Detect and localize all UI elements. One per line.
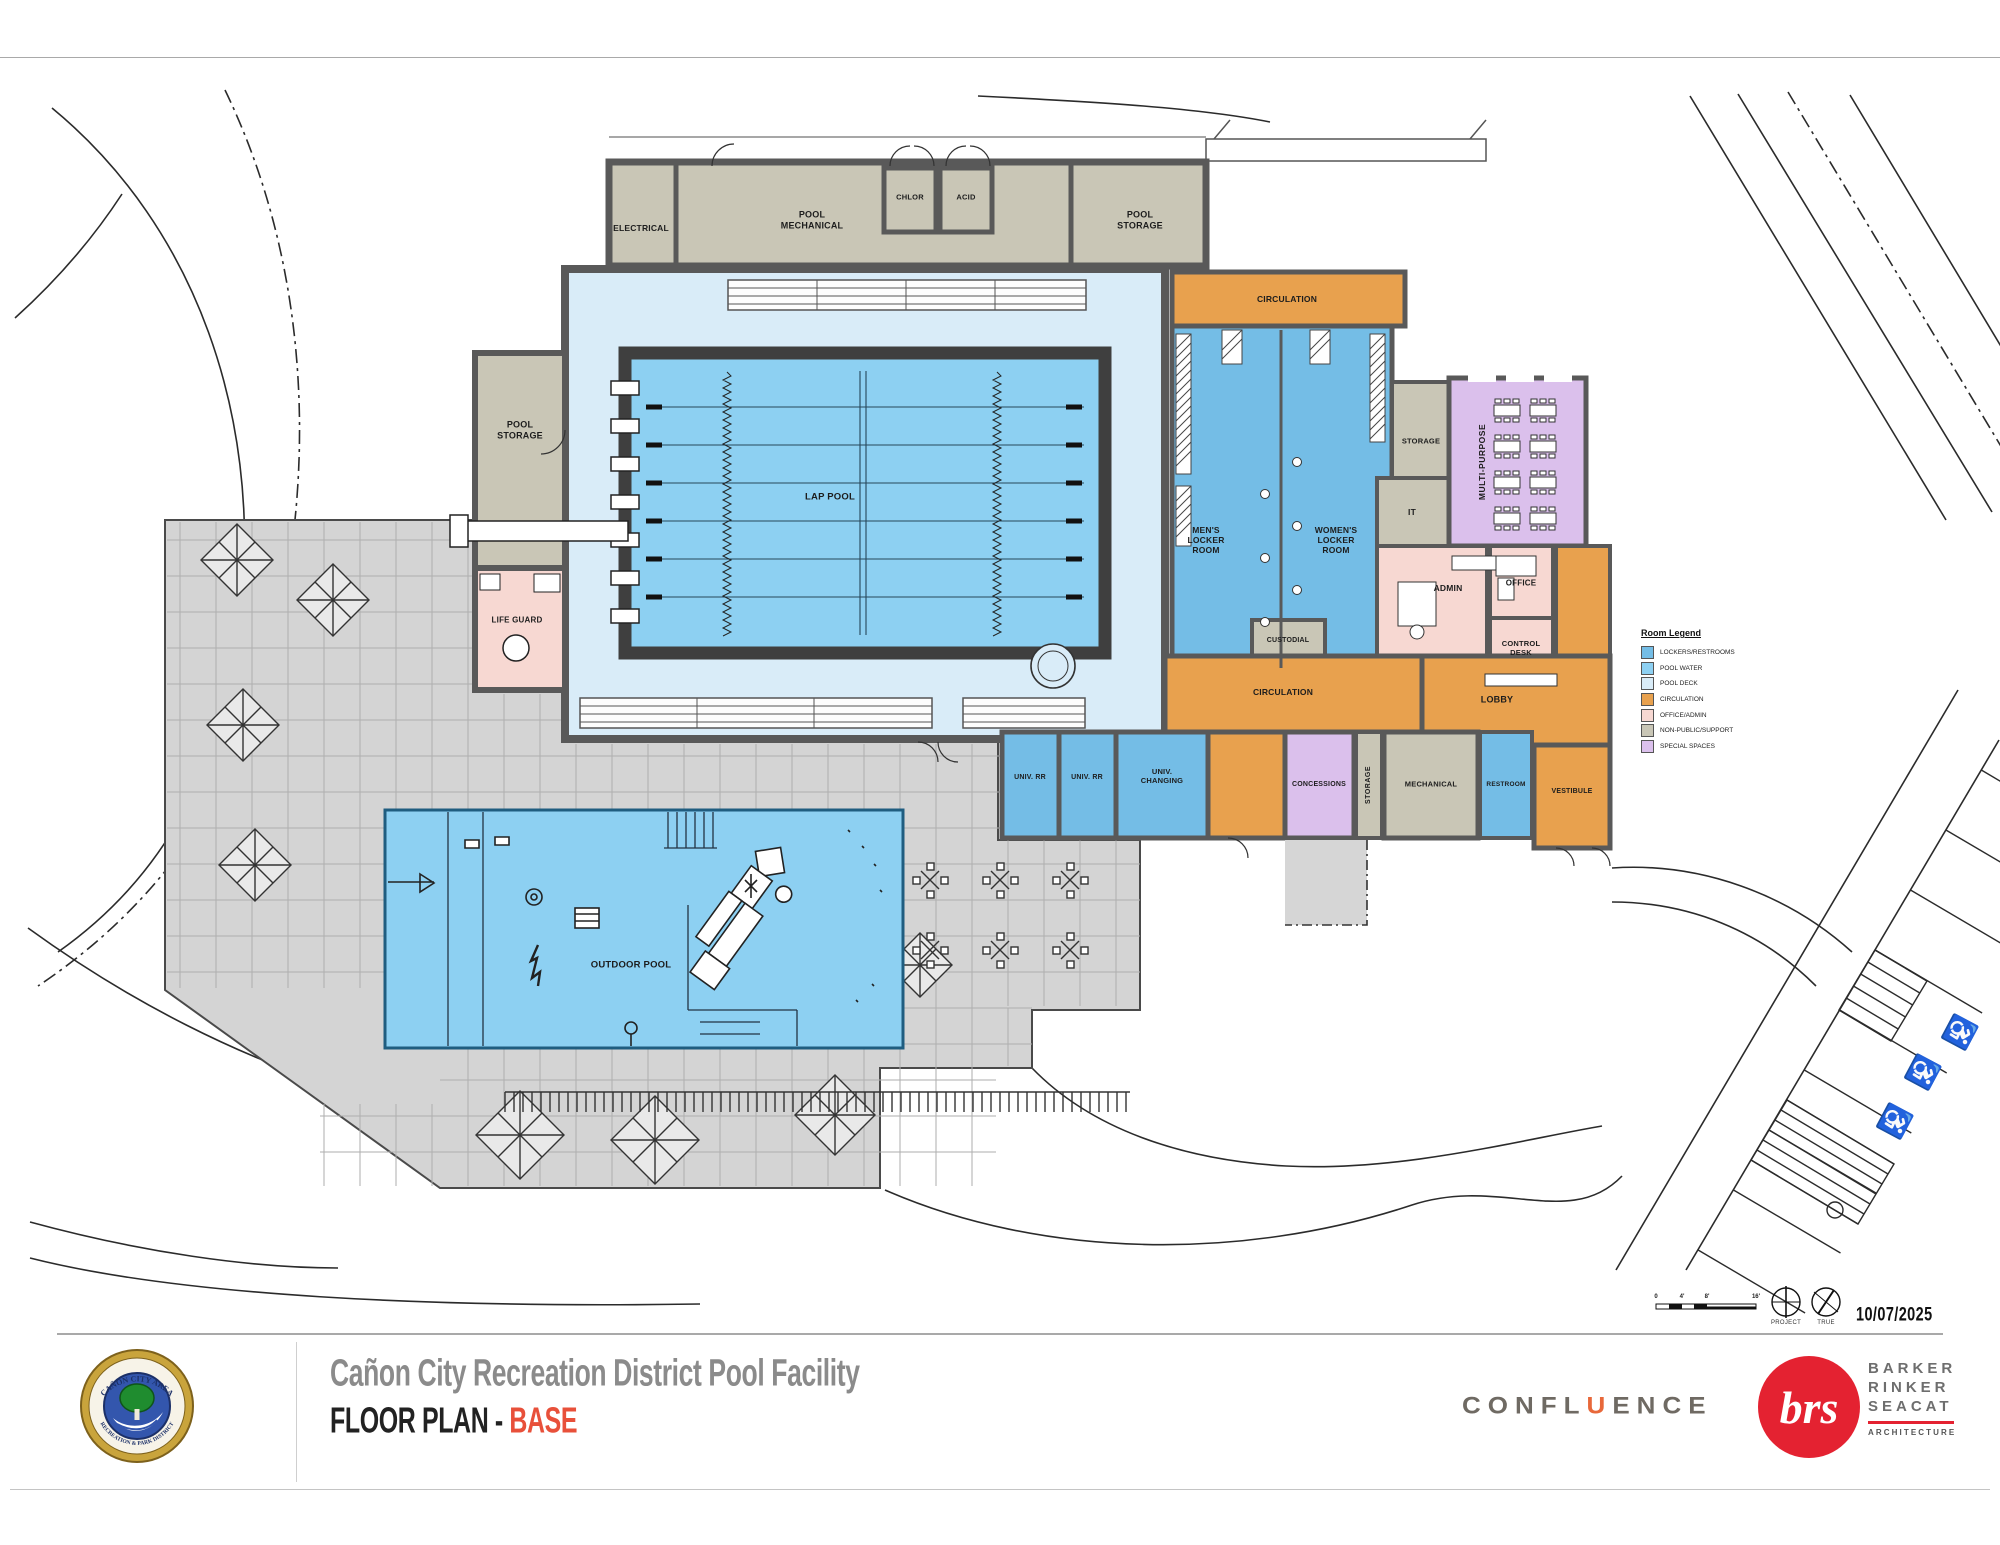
room-legend-title: Room Legend xyxy=(1641,628,1791,638)
room-label-storage-b: STORAGE xyxy=(1365,766,1373,804)
legend-swatch-support xyxy=(1641,724,1654,737)
room-label-womens-locker: WOMEN'S LOCKER ROOM xyxy=(1315,525,1358,555)
room-legend: Room Legend LOCKERS/RESTROOMS POOL WATER… xyxy=(1641,628,1791,754)
room-label-it: IT xyxy=(1408,507,1416,517)
room-label-control-desk: CONTROL DESK xyxy=(1502,640,1540,658)
legend-swatch-circulation xyxy=(1641,693,1654,706)
room-label-admin: ADMIN xyxy=(1434,583,1463,593)
legend-swatch-office-admin xyxy=(1641,709,1654,722)
room-label-lap-pool: LAP POOL xyxy=(805,491,855,502)
legend-item: SPECIAL SPACES xyxy=(1641,739,1791,755)
scale-tick-8: 8' xyxy=(1705,1294,1710,1300)
legend-item: POOL WATER xyxy=(1641,661,1791,677)
parking-area: ♿♿♿ xyxy=(1698,770,2000,1313)
room-label-pool-mechanical: POOL MECHANICAL xyxy=(781,209,844,230)
room-label-vestibule: VESTIBULE xyxy=(1551,788,1592,796)
confluence-logo: CONFLUENCE xyxy=(1462,1391,1713,1420)
room-label-custodial: CUSTODIAL xyxy=(1267,637,1310,645)
sheet-date: 10/07/2025 xyxy=(1856,1303,1933,1326)
room-label-lobby: LOBBY xyxy=(1481,695,1514,706)
room-label-restroom: RESTROOM xyxy=(1486,781,1525,789)
room-label-univ-rr-2: UNIV. RR xyxy=(1071,774,1103,782)
brs-wordmark: BARKER RINKER SEACAT ARCHITECTURE xyxy=(1868,1360,1960,1437)
titleblock-divider xyxy=(296,1342,297,1482)
svg-text:♿: ♿ xyxy=(1874,1100,1916,1143)
room-label-outdoor-pool: OUTDOOR POOL xyxy=(591,959,672,970)
room-label-univ-changing: UNIV. CHANGING xyxy=(1141,768,1183,786)
floor-plan-sheet: ♿♿♿ ELECTRICAL POOL MECHANICAL CHLOR ACI… xyxy=(0,0,2000,1545)
room-label-multipurpose: MULTI-PURPOSE xyxy=(1477,424,1487,500)
brs-red-rule xyxy=(1868,1421,1954,1424)
confluence-orange-u: U xyxy=(1587,1391,1613,1419)
scale-tick-0: 0 xyxy=(1654,1294,1657,1300)
titleblock-top-rule xyxy=(57,1333,1943,1335)
legend-item: NON-PUBLIC/SUPPORT xyxy=(1641,723,1791,739)
district-seal-logo: CAÑON CITY AREA RECREATION & PARK DISTRI… xyxy=(79,1348,195,1464)
room-label-electrical: ELECTRICAL xyxy=(613,223,669,233)
room-label-storage-a: STORAGE xyxy=(1402,438,1440,447)
sheet-title: FLOOR PLAN - BASE xyxy=(330,1400,577,1441)
room-label-circulation-top: CIRCULATION xyxy=(1257,294,1317,304)
outdoor-pool xyxy=(385,810,903,1048)
room-label-life-guard: LIFE GUARD xyxy=(492,615,543,624)
legend-item: OFFICE/ADMIN xyxy=(1641,707,1791,723)
room-label-office: OFFICE xyxy=(1506,578,1537,587)
sheet-bottom-rule xyxy=(10,1489,1990,1490)
brs-monogram-logo: brs xyxy=(1758,1356,1860,1458)
legend-item: LOCKERS/RESTROOMS xyxy=(1641,645,1791,661)
sheet-variant: BASE xyxy=(509,1400,577,1440)
legend-item: CIRCULATION xyxy=(1641,692,1791,708)
room-label-circulation-mid: CIRCULATION xyxy=(1253,687,1313,697)
project-title: Cañon City Recreation District Pool Faci… xyxy=(330,1352,860,1396)
legend-swatch-lockers xyxy=(1641,646,1654,659)
room-label-mens-locker: MEN'S LOCKER ROOM xyxy=(1187,525,1224,555)
north-true-label: TRUE xyxy=(1817,1320,1835,1326)
room-label-mechanical: MECHANICAL xyxy=(1405,781,1457,790)
legend-item: POOL DECK xyxy=(1641,676,1791,692)
room-label-pool-storage-west: POOL STORAGE xyxy=(497,419,543,440)
north-project-label: PROJECT xyxy=(1771,1320,1801,1326)
room-label-chlor: CHLOR xyxy=(896,194,924,203)
scale-tick-4: 4' xyxy=(1680,1294,1685,1300)
room-label-acid: ACID xyxy=(956,194,975,203)
room-label-pool-storage-top: POOL STORAGE xyxy=(1117,209,1163,230)
svg-text:♿: ♿ xyxy=(1902,1051,1944,1094)
legend-swatch-pool-deck xyxy=(1641,677,1654,690)
legend-swatch-special xyxy=(1641,740,1654,753)
sheet-top-rule xyxy=(0,57,2000,58)
room-label-concessions: CONCESSIONS xyxy=(1292,781,1346,789)
room-label-univ-rr-1: UNIV. RR xyxy=(1014,774,1046,782)
scale-tick-16: 16' xyxy=(1752,1294,1760,1300)
legend-swatch-pool-water xyxy=(1641,662,1654,675)
svg-text:♿: ♿ xyxy=(1939,1011,1981,1054)
